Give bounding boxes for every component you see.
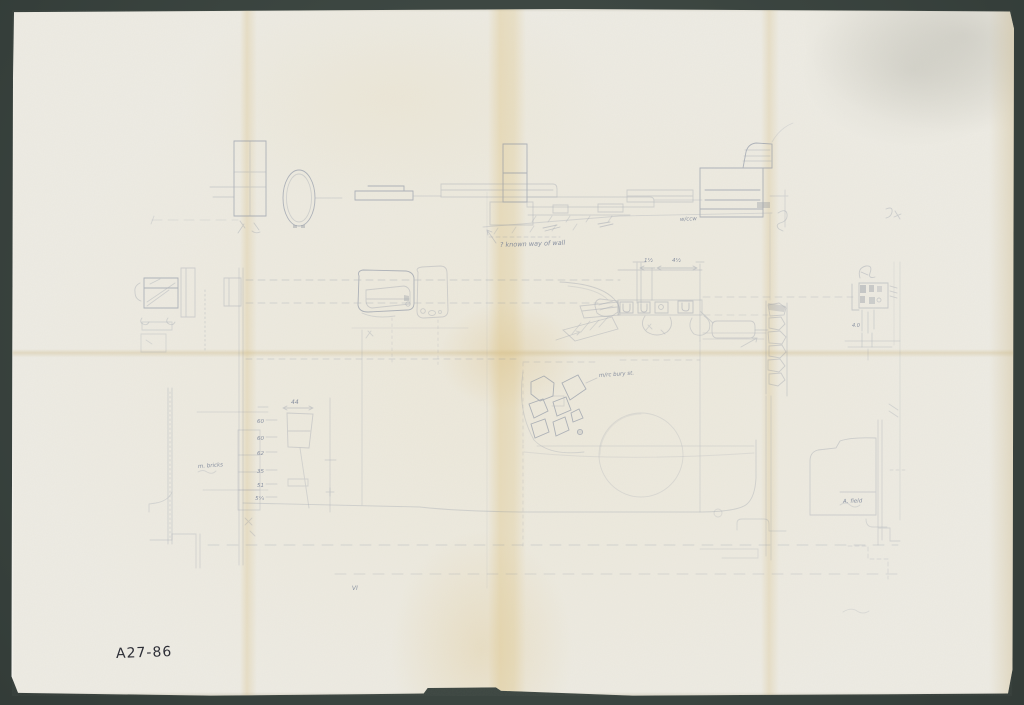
scan-background: ? known way of wall w/ccw [0,0,1024,705]
paper-sheet [10,8,1014,697]
archive-label: A27-86 [116,644,173,662]
